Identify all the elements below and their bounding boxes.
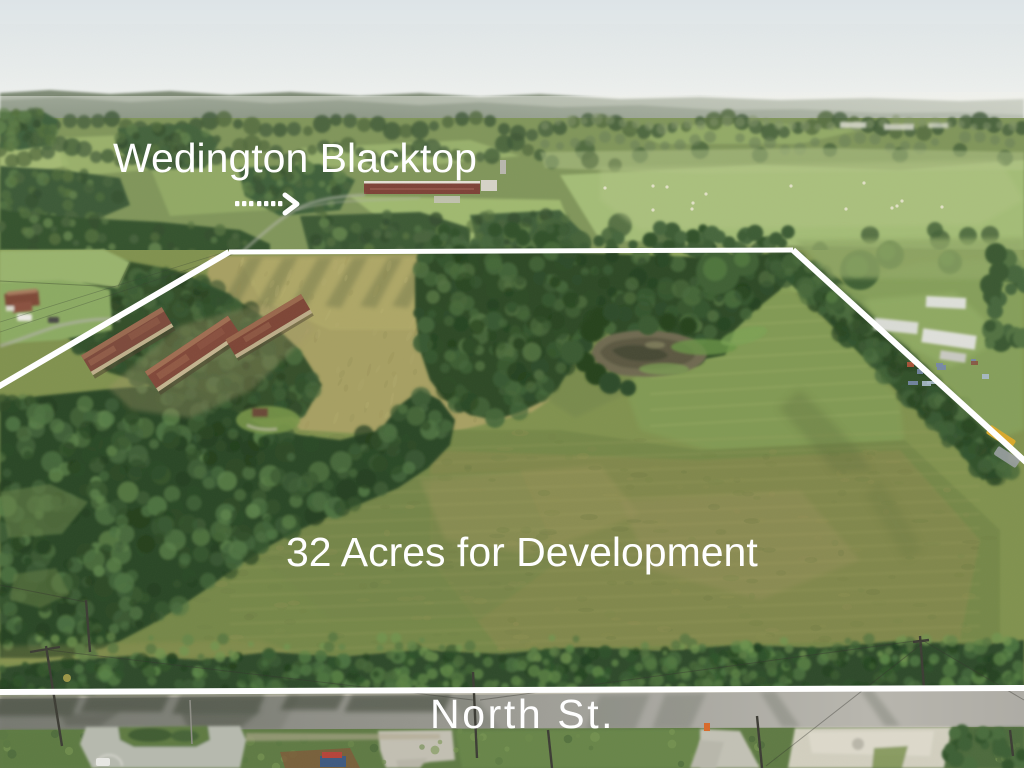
svg-text:Wedington Blacktop: Wedington Blacktop	[113, 135, 477, 181]
svg-text:32 Acres for Development: 32 Acres for Development	[286, 529, 758, 575]
svg-text:North St.: North St.	[430, 691, 615, 737]
